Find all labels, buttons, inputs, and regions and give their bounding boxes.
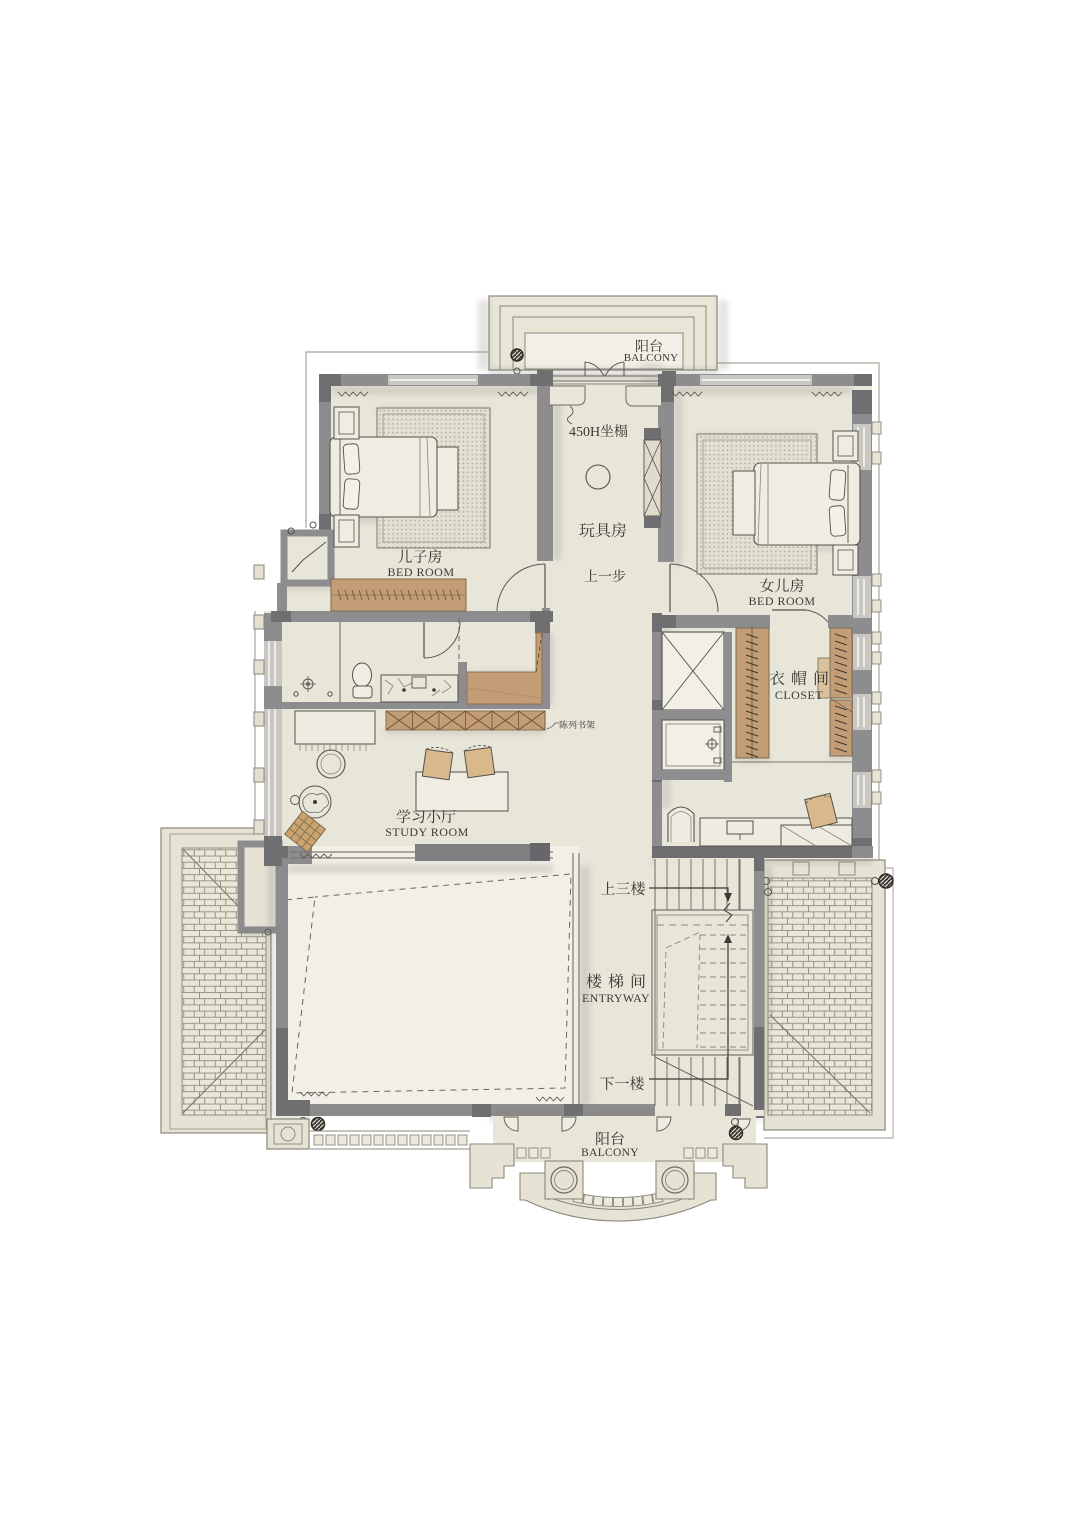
svg-text:CLOSET: CLOSET: [775, 688, 824, 702]
svg-text:BED ROOM: BED ROOM: [748, 594, 815, 608]
svg-text:BALCONY: BALCONY: [624, 352, 679, 364]
svg-text:BALCONY: BALCONY: [581, 1147, 639, 1159]
svg-text:ENTRYWAY: ENTRYWAY: [582, 991, 650, 1005]
svg-text:BED ROOM: BED ROOM: [387, 565, 454, 579]
svg-text:450H: 450H: [569, 425, 600, 440]
svg-text:STUDY ROOM: STUDY ROOM: [385, 825, 469, 839]
